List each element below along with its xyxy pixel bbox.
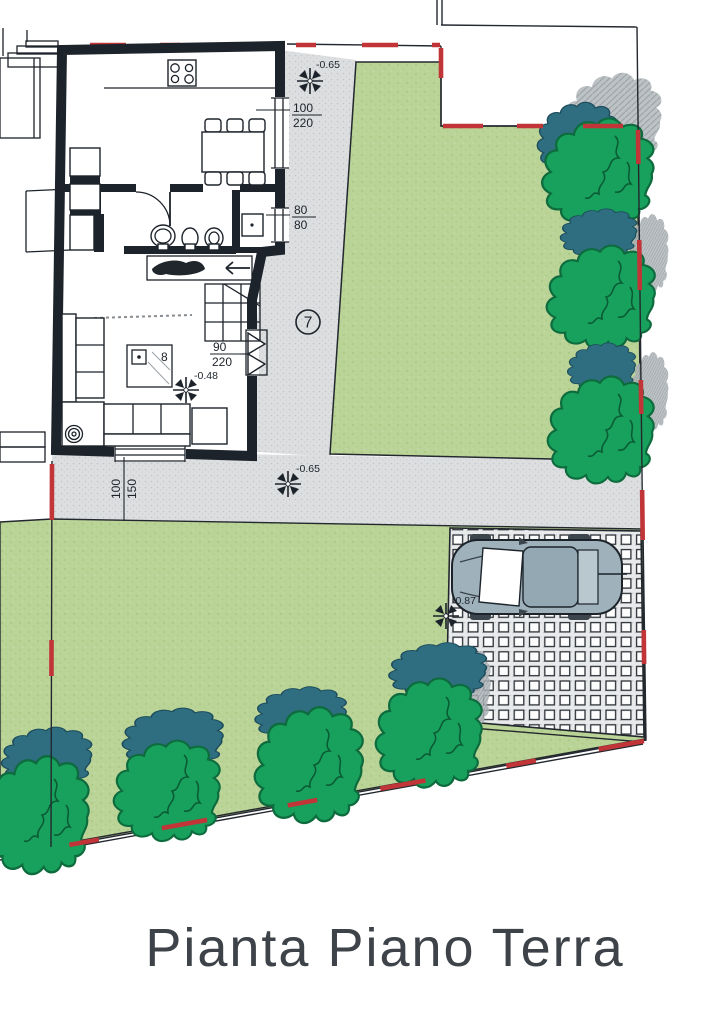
- svg-text:80: 80: [294, 218, 308, 232]
- svg-text:220: 220: [212, 355, 232, 369]
- svg-text:-0.65: -0.65: [316, 59, 340, 71]
- svg-text:-0.87: -0.87: [452, 595, 476, 607]
- car-roof: [523, 547, 578, 607]
- ground-floor-plan-drawing: 8 100 220 80: [0, 0, 726, 1025]
- tree: [0, 727, 92, 874]
- kitchen-window: [271, 97, 289, 169]
- furniture-number-label: 8: [161, 350, 168, 364]
- stove: [168, 60, 196, 86]
- car-windshield: [479, 548, 523, 606]
- svg-text:7: 7: [304, 315, 313, 332]
- svg-text:80: 80: [294, 203, 308, 217]
- svg-text:150: 150: [125, 479, 139, 499]
- tree: [376, 643, 491, 788]
- armchair: [192, 408, 227, 444]
- floor-plan-page: 8 100 220 80: [0, 0, 726, 1025]
- bathroom-window: [271, 208, 289, 242]
- plan-title: Pianta Piano Terra: [145, 918, 624, 978]
- dining-table: [202, 119, 265, 185]
- svg-text:100: 100: [109, 479, 123, 499]
- tree: [547, 209, 669, 348]
- car-rear-window: [578, 550, 598, 604]
- svg-text:-0.48: -0.48: [194, 370, 218, 382]
- svg-text:100: 100: [293, 101, 313, 115]
- parked-car: [452, 534, 627, 620]
- svg-text:90: 90: [213, 340, 227, 354]
- svg-text:-0.65: -0.65: [296, 463, 320, 475]
- living-room-window: [114, 445, 186, 462]
- svg-text:220: 220: [293, 116, 313, 130]
- shower-tray: [242, 214, 263, 236]
- bidet: [182, 228, 198, 250]
